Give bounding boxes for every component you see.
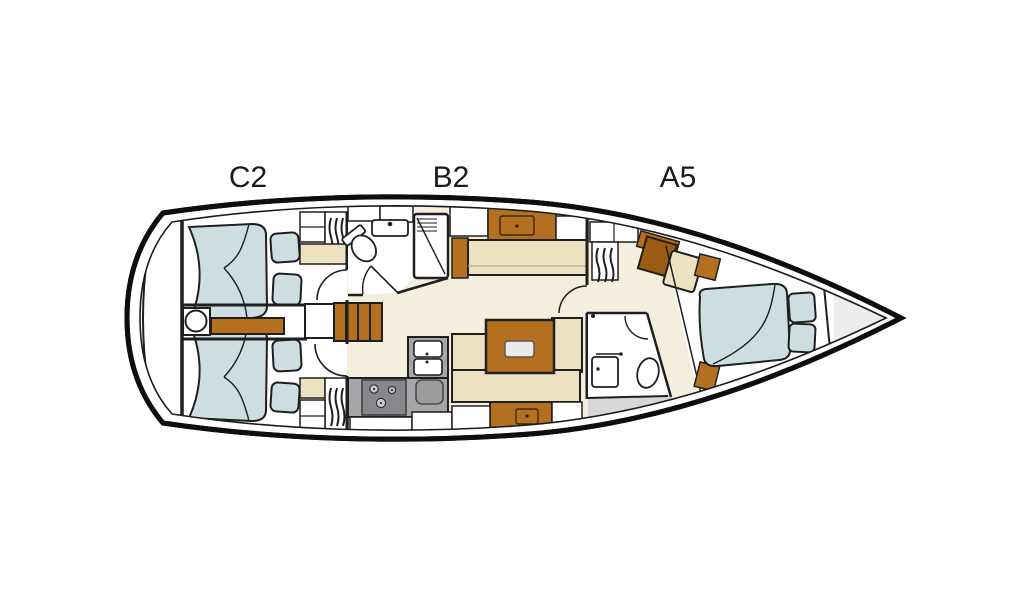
hanging-locker (325, 378, 348, 434)
shower-stall (414, 214, 448, 278)
locker (450, 206, 488, 236)
label-aft-cabin-config: C2 (229, 161, 267, 194)
settee-right (552, 318, 582, 372)
companionway-steps (334, 303, 382, 341)
porthole (186, 311, 207, 332)
table-inset (505, 341, 534, 357)
faucet (426, 361, 429, 364)
pillow (788, 323, 815, 352)
stove (362, 380, 406, 415)
door-hinge (591, 314, 595, 318)
yacht-layout-page: C2 B2 A5 (0, 0, 1024, 600)
pillow (270, 382, 300, 413)
sink-cover (416, 380, 443, 404)
locker (452, 406, 490, 430)
pillow (272, 273, 302, 305)
double-berth (700, 284, 791, 366)
shelf (300, 378, 325, 398)
yacht-deck-plan-diagram: C2 B2 A5 (0, 0, 1024, 600)
settee-bottom (452, 370, 580, 402)
side-cabinet (695, 254, 721, 280)
washbasin (592, 357, 618, 387)
faucet (388, 222, 392, 226)
handle (525, 414, 528, 417)
label-forward-cabin-config: A5 (660, 161, 697, 194)
shelf (211, 318, 284, 334)
locker (556, 216, 588, 242)
label-saloon-config: B2 (433, 161, 470, 194)
saloon-upper-settee (450, 206, 588, 278)
pillow (270, 232, 300, 263)
pillow (272, 339, 302, 371)
faucet (596, 367, 599, 370)
shelf (300, 244, 348, 264)
settee-end (452, 238, 468, 278)
dinette (452, 318, 582, 431)
interior (143, 195, 905, 445)
companionway-landing (305, 304, 334, 338)
hanging-locker (592, 242, 618, 282)
settee-bench (468, 240, 587, 275)
pillow (788, 292, 816, 323)
handle (515, 224, 518, 227)
faucet (426, 353, 429, 356)
